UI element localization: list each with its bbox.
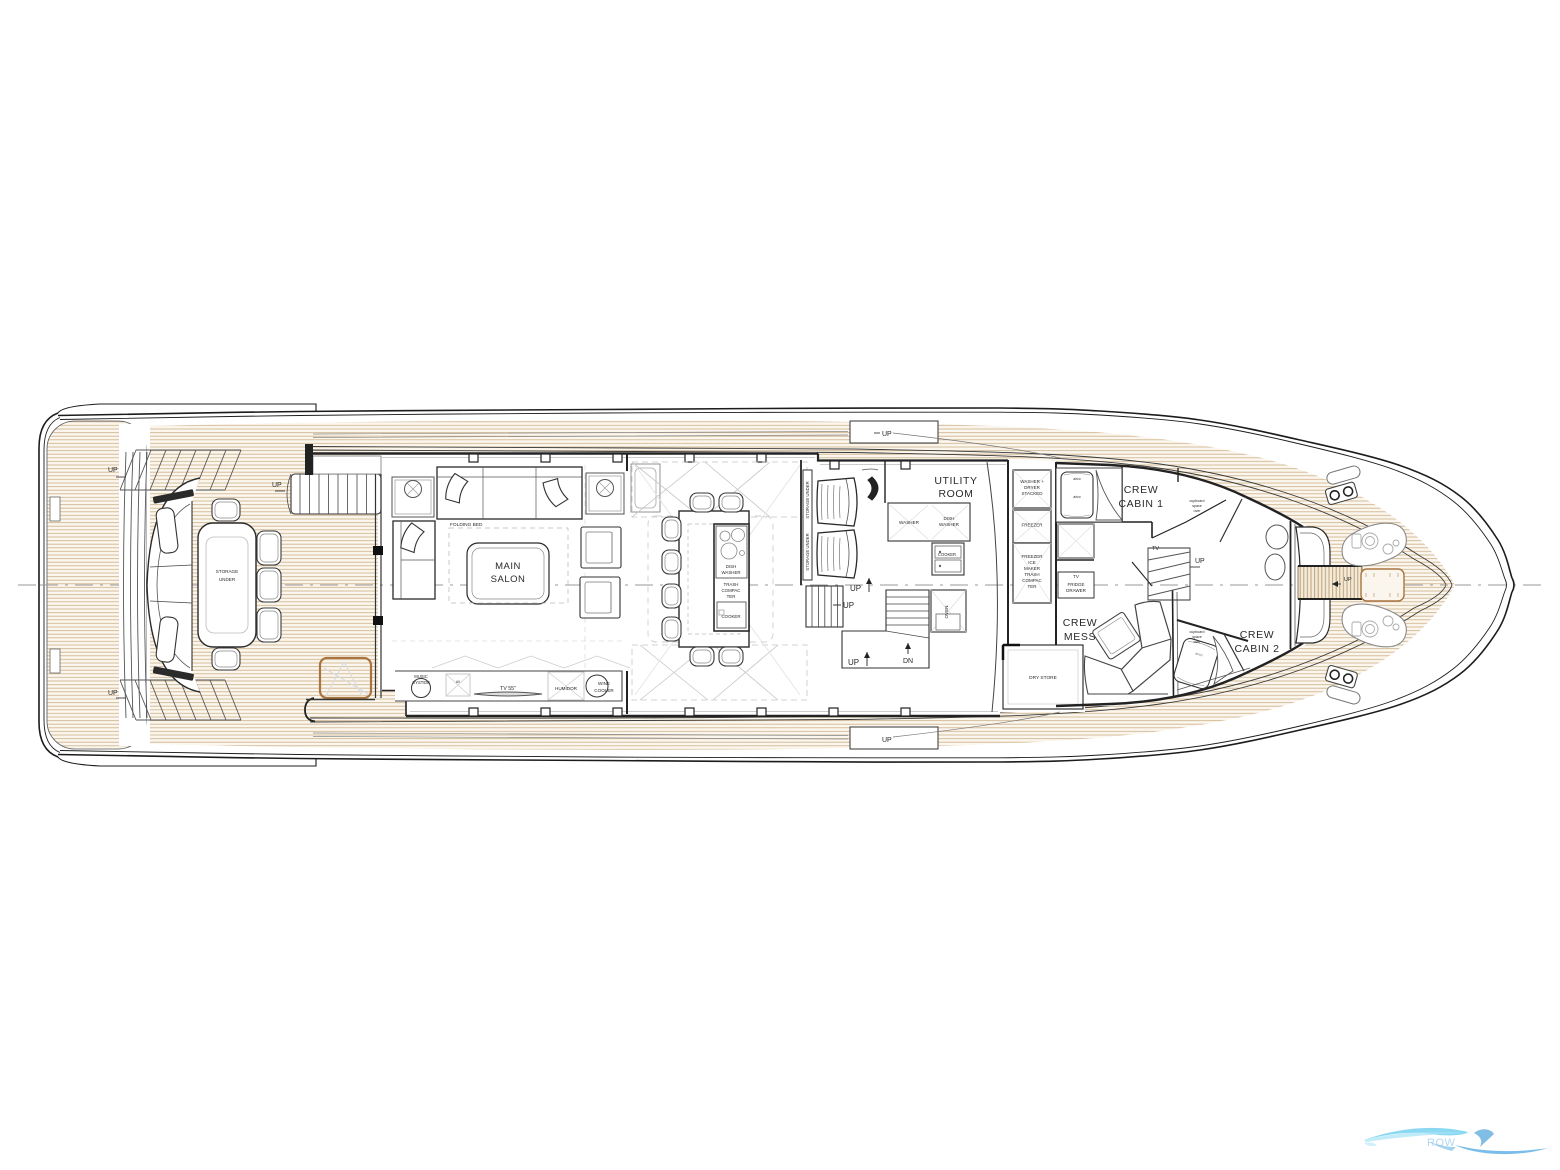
- svg-text:DRY STORE: DRY STORE: [1029, 675, 1057, 681]
- svg-text:DRAWER: DRAWER: [1066, 588, 1087, 593]
- svg-text:MAKER: MAKER: [1024, 566, 1041, 571]
- svg-text:WINE: WINE: [598, 681, 610, 686]
- svg-text:UTILITY: UTILITY: [934, 475, 977, 487]
- svg-text:ROOM: ROOM: [938, 488, 973, 500]
- svg-text:COMPAC: COMPAC: [1022, 578, 1042, 583]
- svg-text:CREW: CREW: [1240, 629, 1274, 641]
- svg-text:UP: UP: [848, 658, 859, 667]
- svg-text:CABIN 2: CABIN 2: [1234, 643, 1279, 655]
- svg-text:WASHER: WASHER: [721, 570, 740, 575]
- svg-text:WASHER: WASHER: [939, 522, 960, 527]
- svg-text:SALON: SALON: [491, 574, 526, 585]
- svg-text:FREEZER: FREEZER: [1021, 523, 1043, 528]
- svg-text:UP: UP: [882, 737, 892, 744]
- svg-text:ICE: ICE: [1028, 560, 1036, 565]
- svg-text:TER: TER: [727, 594, 736, 599]
- svg-text:CABIN 1: CABIN 1: [1118, 498, 1163, 510]
- svg-text:DN: DN: [903, 658, 913, 665]
- svg-text:TRASH: TRASH: [1024, 572, 1039, 577]
- svg-text:UP: UP: [850, 584, 861, 593]
- svg-text:UP: UP: [843, 601, 854, 610]
- svg-text:COOKER: COOKER: [721, 614, 740, 619]
- svg-text:UP: UP: [1344, 577, 1352, 583]
- svg-text:DISH: DISH: [726, 564, 737, 569]
- svg-text:TV: TV: [1152, 546, 1159, 552]
- svg-text:over: over: [1194, 640, 1202, 644]
- svg-text:airco: airco: [1073, 477, 1080, 481]
- svg-text:SYSTEM: SYSTEM: [412, 680, 430, 685]
- svg-text:FOLDING BED: FOLDING BED: [450, 522, 483, 528]
- svg-text:OVEN: OVEN: [944, 605, 949, 618]
- svg-text:COOKER: COOKER: [938, 552, 956, 557]
- svg-text:space: space: [1192, 635, 1202, 639]
- svg-text:TER: TER: [1028, 584, 1038, 589]
- svg-text:CREW: CREW: [1063, 617, 1097, 629]
- svg-text:cupboard: cupboard: [1190, 499, 1205, 503]
- svg-text:UP: UP: [882, 431, 892, 438]
- svg-text:UP: UP: [108, 467, 118, 474]
- svg-text:WASHER: WASHER: [899, 520, 920, 525]
- svg-text:DISH: DISH: [944, 516, 955, 521]
- svg-text:FREEZER: FREEZER: [1021, 554, 1043, 559]
- svg-text:UP: UP: [1195, 558, 1205, 565]
- svg-text:COOLER: COOLER: [594, 688, 614, 693]
- svg-text:TRASH: TRASH: [724, 582, 739, 587]
- svg-text:UP: UP: [108, 690, 118, 697]
- svg-text:STORAGE UNDER: STORAGE UNDER: [805, 533, 810, 570]
- svg-text:DRYER: DRYER: [1024, 485, 1040, 490]
- svg-text:STORAGE UNDER: STORAGE UNDER: [805, 481, 810, 518]
- svg-text:cupboard: cupboard: [1190, 630, 1205, 634]
- svg-text:over: over: [1194, 509, 1202, 513]
- svg-text:STORAGE: STORAGE: [216, 569, 238, 574]
- svg-text:airco: airco: [1073, 495, 1080, 499]
- svg-text:MUSIC: MUSIC: [414, 674, 428, 679]
- svg-text:TV 55": TV 55": [500, 686, 516, 692]
- svg-text:UP: UP: [272, 482, 282, 489]
- svg-text:MESS: MESS: [1064, 631, 1096, 643]
- svg-text:FRIDGE: FRIDGE: [1067, 582, 1084, 587]
- svg-text:space: space: [1192, 504, 1202, 508]
- svg-text:CREW: CREW: [1124, 484, 1158, 496]
- svg-text:COMPAC: COMPAC: [722, 588, 741, 593]
- svg-text:AV: AV: [456, 680, 461, 684]
- svg-text:HUMIDOR: HUMIDOR: [555, 686, 578, 691]
- svg-text:STACKED: STACKED: [1022, 491, 1044, 496]
- svg-text:TV: TV: [1073, 574, 1079, 579]
- svg-text:WASHER +: WASHER +: [1020, 479, 1044, 484]
- svg-text:UNDER: UNDER: [219, 577, 236, 582]
- svg-text:MAIN: MAIN: [495, 561, 521, 572]
